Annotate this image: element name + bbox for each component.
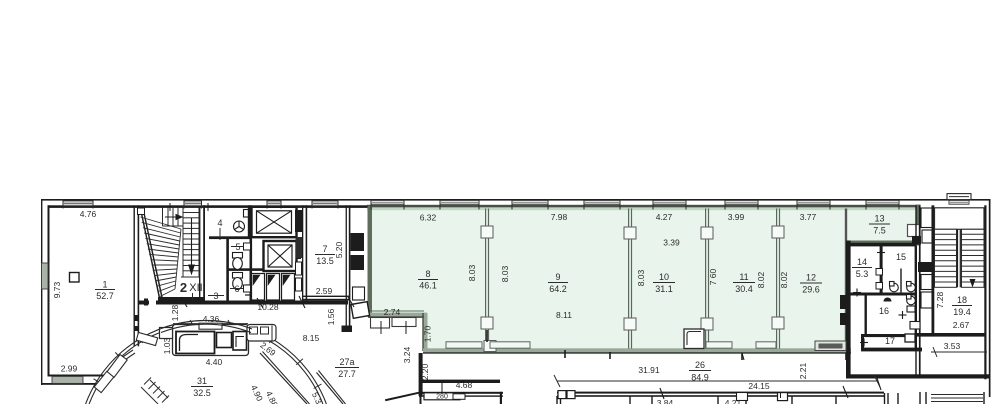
svg-text:8: 8: [425, 269, 430, 279]
svg-text:13: 13: [874, 214, 884, 224]
svg-text:3.84: 3.84: [657, 398, 674, 404]
svg-text:2.74: 2.74: [384, 307, 401, 317]
svg-text:31.91: 31.91: [638, 365, 660, 375]
svg-text:7: 7: [322, 244, 327, 254]
svg-text:4.21: 4.21: [725, 398, 742, 404]
svg-text:46.1: 46.1: [419, 281, 437, 291]
svg-text:52.7: 52.7: [96, 291, 114, 301]
svg-text:31.1: 31.1: [655, 284, 673, 294]
svg-text:15: 15: [896, 252, 906, 262]
svg-text:2.21: 2.21: [798, 362, 808, 379]
svg-text:5.3: 5.3: [856, 269, 869, 279]
svg-text:3.39: 3.39: [663, 238, 680, 248]
svg-text:19.4: 19.4: [953, 307, 971, 317]
svg-text:8.02: 8.02: [779, 271, 789, 288]
svg-text:6.32: 6.32: [420, 213, 437, 223]
svg-text:11: 11: [739, 272, 748, 282]
svg-text:64.2: 64.2: [549, 284, 567, 294]
svg-text:4.68: 4.68: [456, 380, 473, 390]
svg-text:18: 18: [957, 295, 967, 305]
svg-text:7 60: 7 60: [708, 268, 718, 285]
svg-text:8.02: 8.02: [756, 271, 766, 288]
svg-text:10: 10: [659, 272, 669, 282]
svg-text:27a: 27a: [339, 357, 354, 367]
svg-text:1.70: 1.70: [423, 325, 433, 342]
svg-text:4: 4: [217, 218, 222, 228]
svg-text:2: 2: [180, 280, 187, 295]
svg-text:32.5: 32.5: [193, 388, 211, 398]
svg-text:30.4: 30.4: [735, 284, 753, 294]
svg-text:13.5: 13.5: [316, 256, 334, 266]
svg-text:3.53: 3.53: [944, 341, 961, 351]
svg-text:17: 17: [885, 336, 895, 346]
svg-text:26: 26: [695, 360, 705, 370]
svg-text:8.03: 8.03: [636, 269, 646, 286]
svg-text:12: 12: [806, 273, 816, 283]
svg-text:7.98: 7.98: [551, 212, 568, 222]
svg-text:9.73: 9.73: [52, 281, 62, 298]
svg-text:3.24: 3.24: [402, 346, 412, 363]
svg-text:8.03: 8.03: [500, 265, 510, 282]
svg-text:8.15: 8.15: [303, 333, 320, 343]
svg-text:7.5: 7.5: [873, 226, 886, 236]
svg-text:4.76: 4.76: [80, 209, 97, 219]
svg-text:16: 16: [879, 306, 889, 316]
svg-text:280: 280: [436, 394, 448, 401]
svg-text:27.7: 27.7: [338, 369, 356, 379]
svg-text:2.59: 2.59: [316, 286, 333, 296]
svg-text:31: 31: [197, 376, 207, 386]
svg-text:2.99: 2.99: [61, 364, 78, 374]
svg-text:9: 9: [555, 272, 560, 282]
svg-text:14: 14: [857, 257, 867, 267]
svg-text:8.11: 8.11: [556, 310, 572, 320]
svg-text:XII: XII: [189, 282, 202, 294]
svg-text:4.40: 4.40: [206, 357, 223, 367]
svg-text:2.20: 2.20: [420, 363, 430, 380]
svg-text:2.67: 2.67: [953, 320, 970, 330]
svg-text:24.15: 24.15: [748, 381, 770, 391]
svg-text:3.77: 3.77: [800, 212, 817, 222]
svg-text:4.36: 4.36: [203, 314, 220, 324]
svg-text:10.28: 10.28: [257, 302, 279, 312]
svg-text:84.9: 84.9: [691, 373, 709, 383]
svg-text:1.28: 1.28: [170, 304, 180, 321]
svg-text:8.03: 8.03: [467, 264, 477, 281]
svg-text:3.99: 3.99: [728, 212, 745, 222]
svg-text:7.28: 7.28: [935, 291, 945, 308]
svg-text:1.03: 1.03: [162, 337, 172, 354]
svg-text:1: 1: [102, 280, 107, 290]
svg-text:29.6: 29.6: [802, 285, 820, 295]
svg-text:1.56: 1.56: [326, 308, 336, 325]
svg-text:5.20: 5.20: [334, 241, 344, 258]
svg-text:4.27: 4.27: [656, 212, 673, 222]
